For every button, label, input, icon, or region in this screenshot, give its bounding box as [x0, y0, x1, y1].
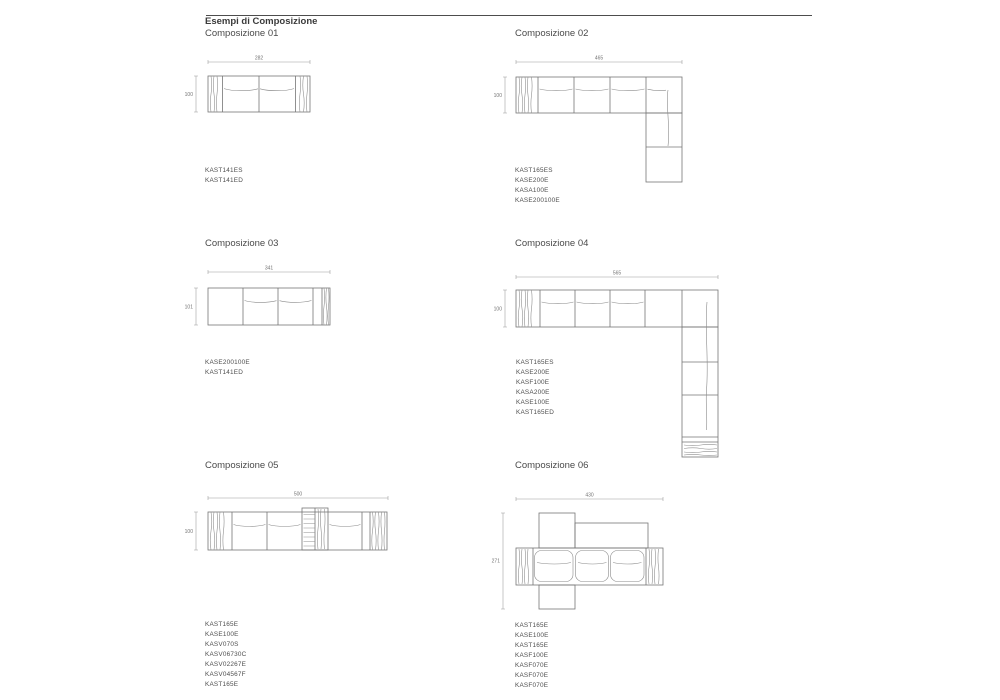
product-code: KASF100E	[516, 378, 554, 388]
seat-cushions	[535, 551, 645, 582]
composition-04-codes: KAST165ES KASE200E KASF100E KASA200E KAS…	[516, 358, 554, 418]
height-dimension-label: 271	[492, 559, 501, 565]
sofa-plan	[208, 508, 387, 550]
product-code: KAST165ES	[516, 358, 554, 368]
product-code: KASV070S	[205, 640, 246, 650]
sofa-plan	[208, 76, 310, 112]
catalog-page: Esempi di Composizione Composizione 01 2…	[0, 0, 1000, 700]
composition-06-diagram: 430 271	[478, 483, 698, 623]
page-title: Esempi di Composizione	[205, 16, 317, 27]
shelf-element	[302, 508, 328, 550]
product-code: KASF070E	[515, 661, 549, 671]
composition-04-title: Composizione 04	[515, 238, 588, 249]
composition-06-codes: KAST165E KASE100E KAST165E KASF100E KASF…	[515, 621, 549, 691]
product-code: KASF070E	[515, 671, 549, 681]
width-dimension: 465	[516, 56, 682, 65]
width-dimension-label: 430	[585, 493, 594, 499]
product-code: KASV06730C	[205, 650, 246, 660]
height-dimension: 100	[185, 76, 198, 112]
composition-03-title: Composizione 03	[205, 238, 278, 249]
product-code: KASE100E	[515, 631, 549, 641]
width-dimension-label: 465	[595, 56, 604, 62]
width-dimension: 341	[208, 266, 330, 275]
height-dimension-label: 100	[494, 307, 503, 313]
composition-05-codes: KAST165E KASE100E KASV070S KASV06730C KA…	[205, 620, 246, 690]
composition-01-codes: KAST141ES KAST141ED	[205, 166, 243, 186]
product-code: KAST165E	[205, 620, 246, 630]
product-code: KASE200100E	[515, 196, 560, 206]
width-dimension: 430	[516, 493, 663, 502]
product-code: KAST165ES	[515, 166, 560, 176]
height-dimension-label: 100	[185, 92, 194, 98]
width-dimension-label: 341	[265, 266, 274, 272]
height-dimension-label: 100	[494, 93, 503, 99]
composition-02-codes: KAST165ES KASE200E KASA100E KASE200100E	[515, 166, 560, 206]
height-dimension: 100	[494, 290, 507, 327]
sofa-plan	[208, 288, 330, 325]
product-code: KASE200E	[516, 368, 554, 378]
product-code: KASA100E	[515, 186, 560, 196]
width-dimension-label: 500	[294, 492, 303, 498]
height-dimension: 100	[185, 512, 198, 550]
product-code: KASF100E	[515, 651, 549, 661]
height-dimension-label: 100	[185, 529, 194, 535]
height-dimension: 101	[185, 288, 198, 325]
composition-03-codes: KASE200100E KAST141ED	[205, 358, 250, 378]
width-dimension: 565	[516, 271, 718, 280]
product-code: KASV02267E	[205, 660, 246, 670]
composition-05-title: Composizione 05	[205, 460, 278, 471]
width-dimension: 500	[208, 492, 388, 501]
composition-01-title: Composizione 01	[205, 28, 278, 39]
width-dimension: 282	[208, 56, 310, 65]
product-code: KAST165E	[515, 621, 549, 631]
composition-05-diagram: 500 100	[180, 483, 395, 563]
product-code: KASE100E	[205, 630, 246, 640]
product-code: KASF070E	[515, 681, 549, 691]
composition-02-title: Composizione 02	[515, 28, 588, 39]
product-code: KAST165E	[205, 680, 246, 690]
product-code: KASE100E	[516, 398, 554, 408]
product-code: KASE200E	[515, 176, 560, 186]
product-code: KASA200E	[516, 388, 554, 398]
sofa-plan	[516, 513, 663, 609]
product-code: KASE200100E	[205, 358, 250, 368]
width-dimension-label: 282	[255, 56, 264, 62]
composition-03-diagram: 341 101	[180, 260, 340, 335]
product-code: KAST141ED	[205, 368, 250, 378]
composition-06-title: Composizione 06	[515, 460, 588, 471]
height-dimension: 271	[492, 513, 505, 609]
height-dimension: 100	[494, 77, 507, 113]
product-code: KAST141ES	[205, 166, 243, 176]
height-dimension-label: 101	[185, 305, 194, 311]
product-code: KAST141ED	[205, 176, 243, 186]
composition-01-diagram: 282 100	[180, 50, 325, 120]
width-dimension-label: 565	[613, 271, 622, 277]
product-code: KAST165ED	[516, 408, 554, 418]
product-code: KAST165E	[515, 641, 549, 651]
product-code: KASV04567F	[205, 670, 246, 680]
